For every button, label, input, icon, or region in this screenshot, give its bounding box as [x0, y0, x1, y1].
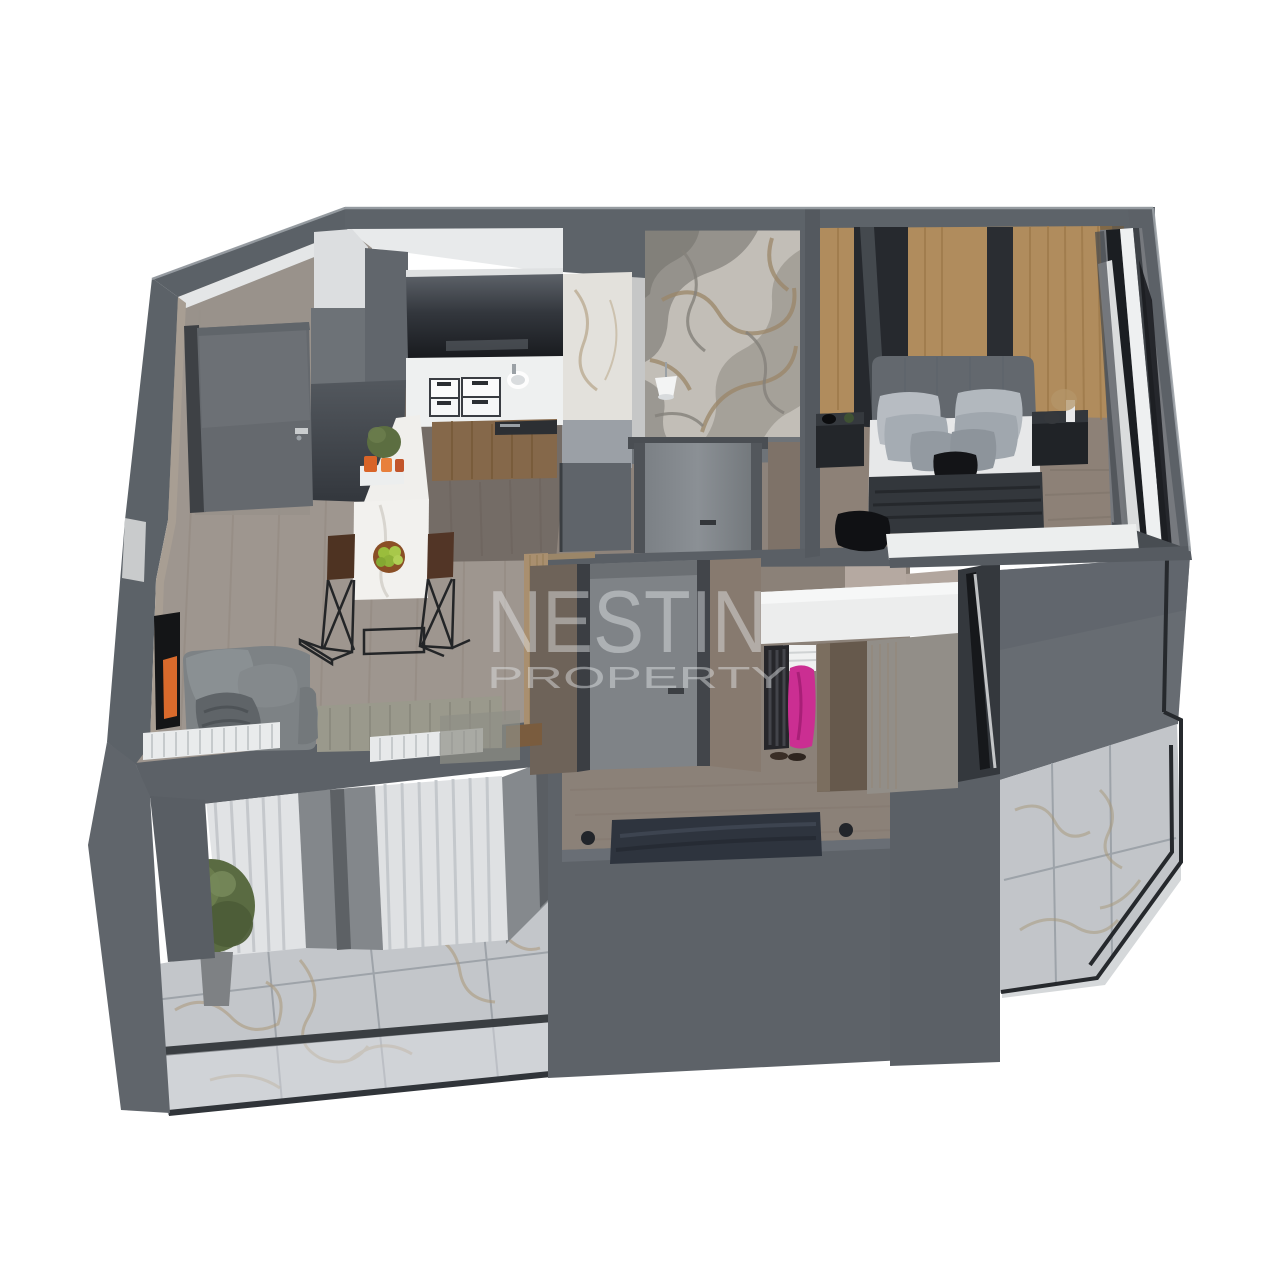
svg-text:NESTIN: NESTIN: [487, 572, 767, 671]
svg-text:PROPERTY: PROPERTY: [487, 660, 787, 695]
